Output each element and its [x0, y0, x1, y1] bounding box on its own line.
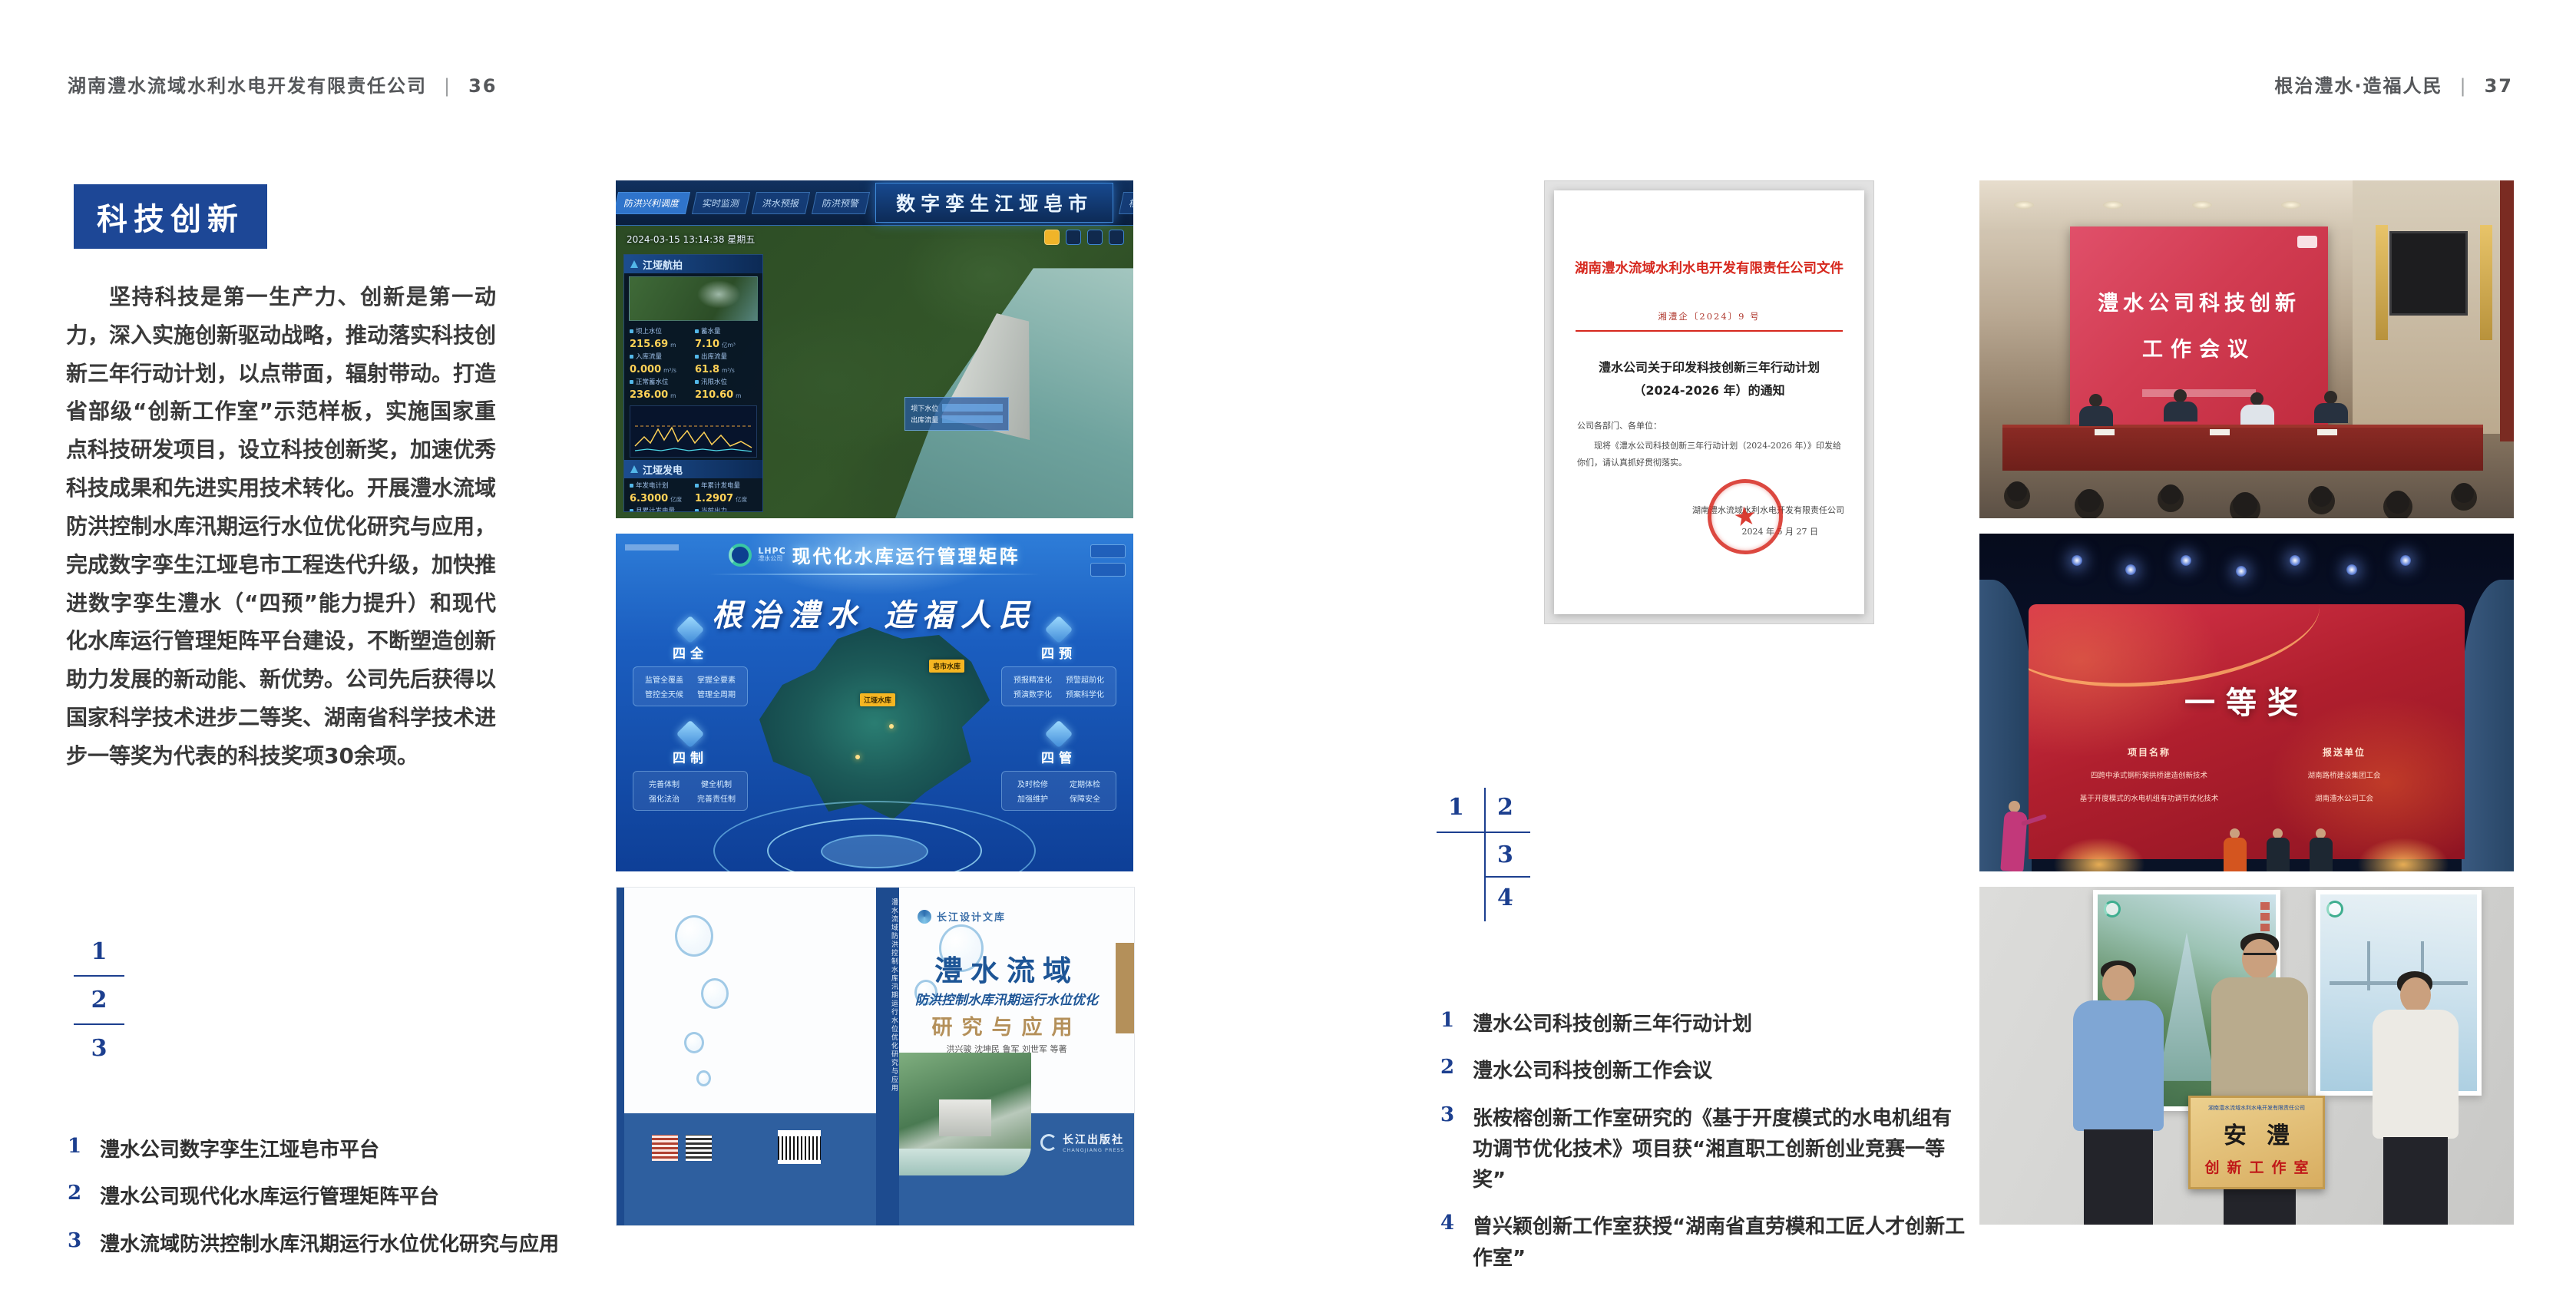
caption-text: 张桉榕创新工作室研究的《基于开度模式的水电机组有功调节优化技术》项目获“湘直职工…	[1473, 1103, 1970, 1196]
stat-item: 正常蓄水位236.00m	[630, 377, 692, 401]
jacket-left-edge	[617, 888, 624, 1225]
star-icon: ★	[1732, 502, 1759, 531]
quadrant-item: 管控全天候	[640, 688, 688, 699]
map-label-jiangya: 江垭水库	[860, 693, 895, 706]
stage-spotlight	[2346, 564, 2357, 575]
panel-logo-icon	[630, 260, 638, 268]
water-droplet	[684, 1032, 704, 1053]
quadrant-icon	[1045, 616, 1073, 644]
person-torso	[2267, 838, 2290, 871]
audience-head	[2161, 484, 2181, 504]
header-separator: |	[2460, 75, 2468, 97]
stat-label: 正常蓄水位	[630, 377, 692, 386]
caption-text: 澧水公司现代化水库运行管理矩阵平台	[100, 1182, 590, 1212]
gold-lamp	[2376, 225, 2388, 340]
figure-meeting-photo: 澧水公司科技创新 工作会议	[1979, 180, 2514, 518]
caption-text: 澧水公司数字孪生江垭皂市平台	[100, 1135, 590, 1165]
generation-stats: 年发电计划6.3000亿度 年累计发电量1.2907亿度 月累计发电量3259.…	[624, 478, 762, 512]
aerial-thumbnail	[629, 276, 758, 321]
dashboard-topbar: 防洪兴利调度 实时监测 洪水预报 防洪预警 数字孪生江垭皂市 模拟预演 预案生成…	[616, 180, 1133, 226]
figure-key-number: 2	[91, 987, 107, 1013]
stage-spotlight	[2072, 555, 2082, 566]
ceiling-light	[2281, 201, 2301, 209]
right-running-header: 根治澧水·造福人民|37	[2274, 71, 2513, 98]
company-logo-icon	[2326, 901, 2343, 918]
quadrant-item: 保障安全	[1061, 792, 1109, 804]
document-number: 湘澧企〔2024〕9 号	[1554, 310, 1864, 322]
document-red-title: 湖南澧水流域水利水电开发有限责任公司文件	[1554, 258, 1864, 277]
quadrant-label: 四管	[1001, 747, 1116, 766]
publisher-logo-icon	[1040, 1134, 1057, 1151]
panel-logo-icon	[630, 465, 638, 473]
quadrant-label: 四预	[1001, 643, 1116, 662]
basin-map	[759, 627, 990, 819]
caption-text: 澧水流域防洪控制水库汛期运行水位优化研究与应用	[100, 1229, 590, 1260]
figure-key-vertical-line	[1484, 788, 1486, 921]
caption-item: 2 澧水公司科技创新工作会议	[1440, 1056, 1970, 1086]
quadrant-icon	[676, 616, 705, 644]
stat-item: 年发电计划6.3000亿度	[630, 481, 692, 504]
document-body: 现将《澧水公司科技创新三年行动计划（2024-2026 年）》印发给你们，请认真…	[1577, 438, 1841, 471]
column-header: 报送单位	[2247, 746, 2442, 759]
cover-blue-band	[617, 1113, 1134, 1225]
stat-label: 年发电计划	[630, 481, 692, 490]
stat-value: 215.69	[630, 339, 668, 350]
panel-aerial-label: 江垭航拍	[643, 257, 683, 272]
quadrant-item: 预演数字化	[1009, 688, 1057, 699]
person-head	[2324, 391, 2337, 404]
quadrant-item: 及时检修	[1009, 778, 1057, 789]
stat-unit: 亿m³	[722, 342, 736, 349]
caption-item: 3 澧水流域防洪控制水库汛期运行水位优化研究与应用	[68, 1229, 590, 1260]
stat-unit: m	[736, 392, 741, 399]
award-unit: 湖南澧水公司工会	[2247, 792, 2442, 803]
caption-number: 1	[1440, 1009, 1473, 1032]
figure-key-number: 2	[1497, 794, 1513, 821]
screen-title-line2: 工作会议	[2070, 332, 2328, 362]
stage-spotlight	[2290, 555, 2300, 566]
tab-flood-warning: 防洪预警	[812, 192, 870, 214]
stat-value: 6.3000	[630, 493, 668, 504]
figure-official-document: 湖南澧水流域水利水电开发有限责任公司文件 湘澧企〔2024〕9 号 澧水公司关于…	[1544, 180, 1874, 624]
stat-label: 年累计发电量	[695, 481, 757, 490]
figure-key-number: 1	[1448, 794, 1464, 821]
quadrant-items: 预报精准化 预警超前化 预演数字化 预案科学化	[1001, 666, 1116, 706]
river-water	[899, 1149, 1031, 1175]
locate-icon	[1066, 230, 1081, 245]
dashboard-tabs-right: 模拟预演 预案生成 调度执行 工程导览	[1121, 192, 1133, 214]
map-data-chip: 坝下水位 出库流量	[904, 397, 1009, 431]
stage-spotlight	[2400, 555, 2411, 566]
qr-code	[652, 1135, 678, 1161]
right-page-number: 37	[2485, 75, 2513, 97]
awardee-figure	[2308, 828, 2334, 871]
plaque-subtitle: 创新工作室	[2191, 1156, 2323, 1177]
caption-number: 3	[68, 1229, 100, 1252]
section-title: 科技创新	[74, 184, 267, 249]
isbn-barcode	[778, 1130, 821, 1164]
figure-matrix-platform: LHPC 澧水公司 现代化水库运行管理矩阵 根治澧水 造福人民 皂市水库 江垭水…	[616, 534, 1133, 871]
series-logo-icon	[918, 910, 931, 924]
quadrant-item: 强化法治	[640, 792, 688, 804]
radar-rings	[713, 801, 1036, 871]
left-running-header: 湖南澧水流域水利水电开发有限责任公司|36	[68, 71, 498, 98]
quadrant-sizhi: 四制 完善体制 健全机制 强化法治 完善责任制	[633, 724, 748, 811]
award-project: 基于开度模式的水电机组有功调节优化技术	[2052, 792, 2247, 803]
reservoir-stats: 坝上水位215.69m 蓄水量7.10亿m³ 入库流量0.000m³/s 出库流…	[624, 324, 762, 403]
official-seal: ★	[1703, 474, 1788, 560]
book-title-tail: 研究与应用	[899, 1010, 1114, 1040]
award-columns: 项目名称 四跨中承式钢桁架拱桥建造创新技术 基于开度模式的水电机组有功调节优化技…	[2052, 746, 2442, 815]
stat-label: 出库流量	[695, 352, 757, 361]
header-rule	[709, 574, 1040, 575]
company-logo-icon	[729, 544, 752, 567]
spine-title: 澧水流域防洪控制水库汛期运行水位优化研究与应用	[876, 898, 899, 1202]
water-droplet	[701, 978, 729, 1009]
measure-icon	[1087, 230, 1103, 245]
dashboard-timestamp: 2024-03-15 13:14:38 星期五	[627, 233, 755, 246]
panel-header-aerial: 江垭航拍	[624, 255, 762, 273]
stage-spotlight	[2125, 564, 2136, 575]
book-title-main: 澧水流域	[899, 947, 1114, 989]
person-torso	[2079, 406, 2113, 426]
stat-item: 入库流量0.000m³/s	[630, 352, 692, 375]
stat-value: 0.000	[630, 364, 661, 375]
audience-head	[2454, 483, 2474, 503]
award-unit-column: 报送单位 湖南路桥建设集团工会 湖南澧水公司工会	[2247, 746, 2442, 815]
person-right	[2354, 971, 2477, 1225]
map-station-dot	[889, 724, 894, 729]
matrix-title: 现代化水库运行管理矩阵	[792, 541, 1020, 568]
stat-value: 236.00	[630, 389, 668, 401]
brand-block: LHPC 澧水公司	[758, 547, 785, 563]
caption-number: 1	[68, 1135, 100, 1158]
seated-person	[2311, 391, 2351, 431]
company-logo-icon	[2104, 901, 2121, 918]
plaque-header: 湖南澧水流域水利水电开发有限责任公司	[2191, 1104, 2323, 1112]
cover-dam-photo	[899, 1053, 1031, 1175]
panel-header-generation: 江垭发电	[624, 460, 762, 478]
person-head	[2174, 389, 2187, 402]
awardee-figure	[2265, 828, 2291, 871]
quadrant-item: 掌握全要素	[693, 673, 740, 685]
matrix-timestamp-placeholder	[625, 544, 679, 551]
stat-label: 入库流量	[630, 352, 692, 361]
figure-key-number: 1	[91, 938, 107, 965]
person-torso	[2310, 838, 2333, 871]
award-project-column: 项目名称 四跨中承式钢桁架拱桥建造创新技术 基于开度模式的水电机组有功调节优化技…	[2052, 746, 2247, 815]
figure-key-number: 3	[1497, 841, 1513, 868]
award-project: 四跨中承式钢桁架拱桥建造创新技术	[2052, 769, 2247, 780]
caption-number: 4	[1440, 1212, 1473, 1235]
stat-unit: 亿度	[670, 496, 682, 503]
caption-number: 3	[1440, 1103, 1473, 1126]
seated-person	[2161, 389, 2201, 429]
chip-label: 出库流量	[911, 415, 938, 425]
water-droplet	[696, 1070, 711, 1086]
award-unit: 湖南路桥建设集团工会	[2247, 769, 2442, 780]
glasses-icon	[2244, 953, 2276, 961]
panel-generation-label: 江垭发电	[643, 462, 683, 477]
subject-line: 澧水公司关于印发科技创新三年行动计划	[1554, 356, 1864, 379]
stat-value: 61.8	[695, 364, 719, 375]
quadrant-item: 预警超前化	[1061, 673, 1109, 685]
audience-head	[2386, 491, 2409, 514]
stage-spotlight	[2236, 566, 2247, 577]
book-title-sub: 防洪控制水库汛期运行水位优化	[887, 989, 1126, 1008]
map-label-zaoshi: 皂市水库	[929, 660, 964, 673]
stat-item: 当前出力0.00MW	[695, 506, 757, 512]
figure-key-divider	[74, 1023, 124, 1025]
stat-unit: m	[670, 392, 676, 399]
caption-item: 3 张桉榕创新工作室研究的《基于开度模式的水电机组有功调节优化技术》项目获“湘直…	[1440, 1103, 1970, 1196]
quadrant-items: 监管全覆盖 掌握全要素 管控全天候 管理全周期	[633, 666, 748, 706]
stat-unit: m³/s	[722, 367, 735, 374]
award-headline: 一等奖	[2029, 678, 2465, 722]
caption-item: 1 澧水公司科技创新三年行动计划	[1440, 1009, 1970, 1040]
person-torso	[2314, 403, 2348, 423]
qr-code	[686, 1135, 712, 1161]
stat-unit: m³/s	[663, 367, 676, 374]
quadrant-siquan: 四全 监管全覆盖 掌握全要素 管控全天候 管理全周期	[633, 620, 748, 706]
book-spine: 澧水流域防洪控制水库汛期运行水位优化研究与应用	[876, 888, 899, 1225]
tab-simulation-preview: 模拟预演	[1119, 192, 1133, 214]
chip-row: 出库流量	[911, 415, 1003, 425]
publisher-name: 长江出版社	[1063, 1132, 1125, 1147]
publisher-row: 长江出版社 CHANGJIANG PRESS	[1040, 1132, 1125, 1153]
figure-key-horizontal-line	[1437, 832, 1530, 833]
column-header: 项目名称	[2052, 746, 2247, 759]
stat-item: 坝上水位215.69m	[630, 326, 692, 350]
seated-person	[2237, 392, 2277, 432]
award-screen: 一等奖 项目名称 四跨中承式钢桁架拱桥建造创新技术 基于开度模式的水电机组有功调…	[2029, 604, 2465, 859]
caption-text: 澧水公司科技创新三年行动计划	[1473, 1009, 1970, 1040]
caption-number: 2	[68, 1182, 100, 1205]
awardee-figure	[2222, 828, 2248, 871]
quadrant-item: 预案科学化	[1061, 688, 1109, 699]
figure-key-divider	[74, 975, 124, 977]
audience-head	[2311, 486, 2332, 507]
layers-icon	[1044, 230, 1060, 245]
series-name: 长江设计文库	[937, 909, 1006, 924]
document-subject: 澧水公司关于印发科技创新三年行动计划 （2024-2026 年）的通知	[1554, 356, 1864, 403]
quadrant-item: 管理全周期	[693, 688, 740, 699]
brand-cn: 澧水公司	[758, 556, 785, 563]
stat-value: 1.2907	[695, 493, 733, 504]
stat-label: 月累计发电量	[630, 506, 692, 512]
brochure-spread: 湖南澧水流域水利水电开发有限责任公司|36 根治澧水·造福人民|37 科技创新 …	[0, 0, 2576, 1306]
wall-tv	[2389, 231, 2468, 316]
left-header-company: 湖南澧水流域水利水电开发有限责任公司	[68, 75, 427, 97]
cover-gold-bar	[1116, 943, 1134, 1033]
stat-item: 出库流量61.8m³/s	[695, 352, 757, 375]
quadrant-item: 健全机制	[693, 778, 740, 789]
person-torso	[2164, 402, 2197, 422]
chip-label: 坝下水位	[911, 403, 938, 413]
tab-flood-forecast: 洪水预报	[752, 192, 810, 214]
tab-flood-benefit-dispatch: 防洪兴利调度	[616, 192, 690, 214]
right-header-slogan: 根治澧水·造福人民	[2274, 75, 2442, 97]
matrix-button	[1090, 563, 1126, 577]
person-shirt	[2211, 977, 2308, 1116]
ceiling-light	[2014, 201, 2034, 209]
stat-item: 月累计发电量3259.21万度	[630, 506, 692, 512]
chip-row: 坝下水位	[911, 403, 1003, 413]
body-paragraph: 坚持科技是第一生产力、创新是第一动力，深入实施创新驱动战略，推动落实科技创新三年…	[66, 278, 496, 775]
matrix-header: LHPC 澧水公司 现代化水库运行管理矩阵	[616, 541, 1133, 568]
chip-value-box	[942, 415, 1003, 423]
caption-item: 2 澧水公司现代化水库运行管理矩阵平台	[68, 1182, 590, 1212]
person-torso	[2224, 838, 2247, 871]
person-head	[2250, 392, 2264, 405]
radar-ring	[821, 835, 928, 868]
dashboard-title: 数字孪生江垭皂市	[875, 183, 1113, 223]
figure-digital-twin-platform: 防洪兴利调度 实时监测 洪水预报 防洪预警 数字孪生江垭皂市 模拟预演 预案生成…	[616, 180, 1133, 518]
stat-label: 当前出力	[695, 506, 757, 512]
left-figure-key: 1 2 3	[74, 938, 124, 1062]
water-level-chart	[630, 405, 757, 458]
innovation-studio-plaque: 湖南澧水流域水利水电开发有限责任公司 安澧 创新工作室	[2188, 1096, 2325, 1189]
stat-unit: 亿度	[736, 496, 747, 503]
document-page: 湖南澧水流域水利水电开发有限责任公司文件 湘澧企〔2024〕9 号 澧水公司关于…	[1554, 190, 1864, 614]
tab-realtime-monitoring: 实时监测	[692, 192, 750, 214]
ceiling-light	[2192, 201, 2212, 209]
figure-book-cover: 澧水流域防洪控制水库汛期运行水位优化研究与应用 长江设计文库 澧水流域 防洪控制…	[616, 887, 1135, 1226]
audience-head	[2078, 489, 2101, 512]
quadrant-siyu: 四预 预报精准化 预警超前化 预演数字化 预案科学化	[1001, 620, 1116, 706]
figure-award-photo: 一等奖 项目名称 四跨中承式钢桁架拱桥建造创新技术 基于开度模式的水电机组有功调…	[1979, 534, 2514, 871]
quadrant-label: 四制	[633, 747, 748, 766]
host-figure	[1996, 801, 2042, 871]
stat-value: 210.60	[695, 389, 733, 401]
quadrant-icon	[676, 720, 705, 749]
quadrant-icon	[1045, 720, 1073, 749]
quadrant-siguan: 四管 及时检修 定期体检 加强维护 保障安全	[1001, 724, 1116, 811]
person-shirt	[2073, 1000, 2164, 1131]
header-separator: |	[444, 75, 451, 97]
person-head	[2089, 394, 2102, 407]
table-paper	[2210, 429, 2230, 435]
audience-head	[2233, 492, 2257, 517]
document-red-rule	[1576, 330, 1843, 332]
audience-head	[2007, 481, 2027, 501]
dam-structure	[939, 1099, 992, 1136]
stat-unit: m	[670, 342, 676, 349]
matrix-button	[1090, 544, 1126, 558]
figure-plaque-photo: 湖南澧水流域水利水电开发有限责任公司 安澧 创新工作室	[1979, 887, 2514, 1225]
subject-line: （2024-2026 年）的通知	[1554, 379, 1864, 402]
water-droplet	[675, 915, 713, 957]
red-pillar	[2500, 180, 2514, 441]
ceiling-light	[2103, 201, 2123, 209]
stat-label: 蓄水量	[695, 326, 757, 336]
chip-value-box	[942, 404, 1003, 412]
plaque-title: 安澧	[2191, 1116, 2323, 1150]
left-captions: 1 澧水公司数字孪生江垭皂市平台 2 澧水公司现代化水库运行管理矩阵平台 3 澧…	[68, 1135, 590, 1276]
caption-number: 2	[1440, 1056, 1473, 1079]
quadrant-item: 完善体制	[640, 778, 688, 789]
caption-item: 4 曾兴颖创新工作室获授“湖南省直劳模和工匠人才创新工作室”	[1440, 1212, 1970, 1274]
stat-item: 年累计发电量1.2907亿度	[695, 481, 757, 504]
stat-item: 蓄水量7.10亿m³	[695, 326, 757, 350]
publisher-name-en: CHANGJIANG PRESS	[1063, 1147, 1125, 1153]
person-legs	[2084, 1129, 2153, 1225]
quadrant-label: 四全	[633, 643, 748, 662]
stage-pillar	[2462, 580, 2514, 871]
person-left	[2053, 960, 2184, 1225]
map-station-dot	[855, 755, 860, 759]
host-dress	[2000, 811, 2027, 871]
caption-text: 曾兴颖创新工作室获授“湖南省直劳模和工匠人才创新工作室”	[1473, 1212, 1970, 1274]
dashboard-toolbar-icons	[1044, 230, 1124, 245]
stat-label: 坝上水位	[630, 326, 692, 336]
caption-text: 澧水公司科技创新工作会议	[1473, 1056, 1970, 1086]
dashboard-left-panel: 江垭航拍 坝上水位215.69m 蓄水量7.10亿m³ 入库流量0.000m³/…	[623, 254, 763, 512]
person-torso	[2240, 405, 2274, 425]
screen-logo-icon	[2297, 236, 2317, 248]
figure-key-number: 3	[91, 1035, 107, 1062]
figure-key-horizontal-line	[1486, 876, 1530, 878]
gold-lamp	[2480, 225, 2492, 340]
person-head	[2102, 965, 2135, 1002]
screen-title-line1: 澧水公司科技创新	[2070, 286, 2328, 316]
stage-spotlight	[2181, 555, 2191, 566]
quadrant-item: 预报精准化	[1009, 673, 1057, 685]
left-page-number: 36	[468, 75, 497, 97]
right-captions: 1 澧水公司科技创新三年行动计划 2 澧水公司科技创新工作会议 3 张桉榕创新工…	[1440, 1009, 1970, 1290]
stat-value: 7.10	[695, 339, 719, 350]
quadrant-item: 定期体检	[1061, 778, 1109, 789]
person-shirt	[2373, 1010, 2459, 1139]
person-legs	[2383, 1137, 2448, 1225]
series-logo-row: 长江设计文库	[918, 909, 1006, 924]
dashboard-tabs-left: 防洪兴利调度 实时监测 洪水预报 防洪预警	[616, 192, 868, 214]
figure-key-number: 4	[1497, 884, 1513, 911]
document-salutation: 公司各部门、各单位：	[1577, 419, 1662, 431]
fullscreen-icon	[1109, 230, 1124, 245]
caption-item: 1 澧水公司数字孪生江垭皂市平台	[68, 1135, 590, 1165]
seated-person	[2076, 394, 2116, 434]
person-head	[2400, 977, 2431, 1013]
stat-item: 汛限水位210.60m	[695, 377, 757, 401]
stat-label: 汛限水位	[695, 377, 757, 386]
quadrant-item: 监管全覆盖	[640, 673, 688, 685]
